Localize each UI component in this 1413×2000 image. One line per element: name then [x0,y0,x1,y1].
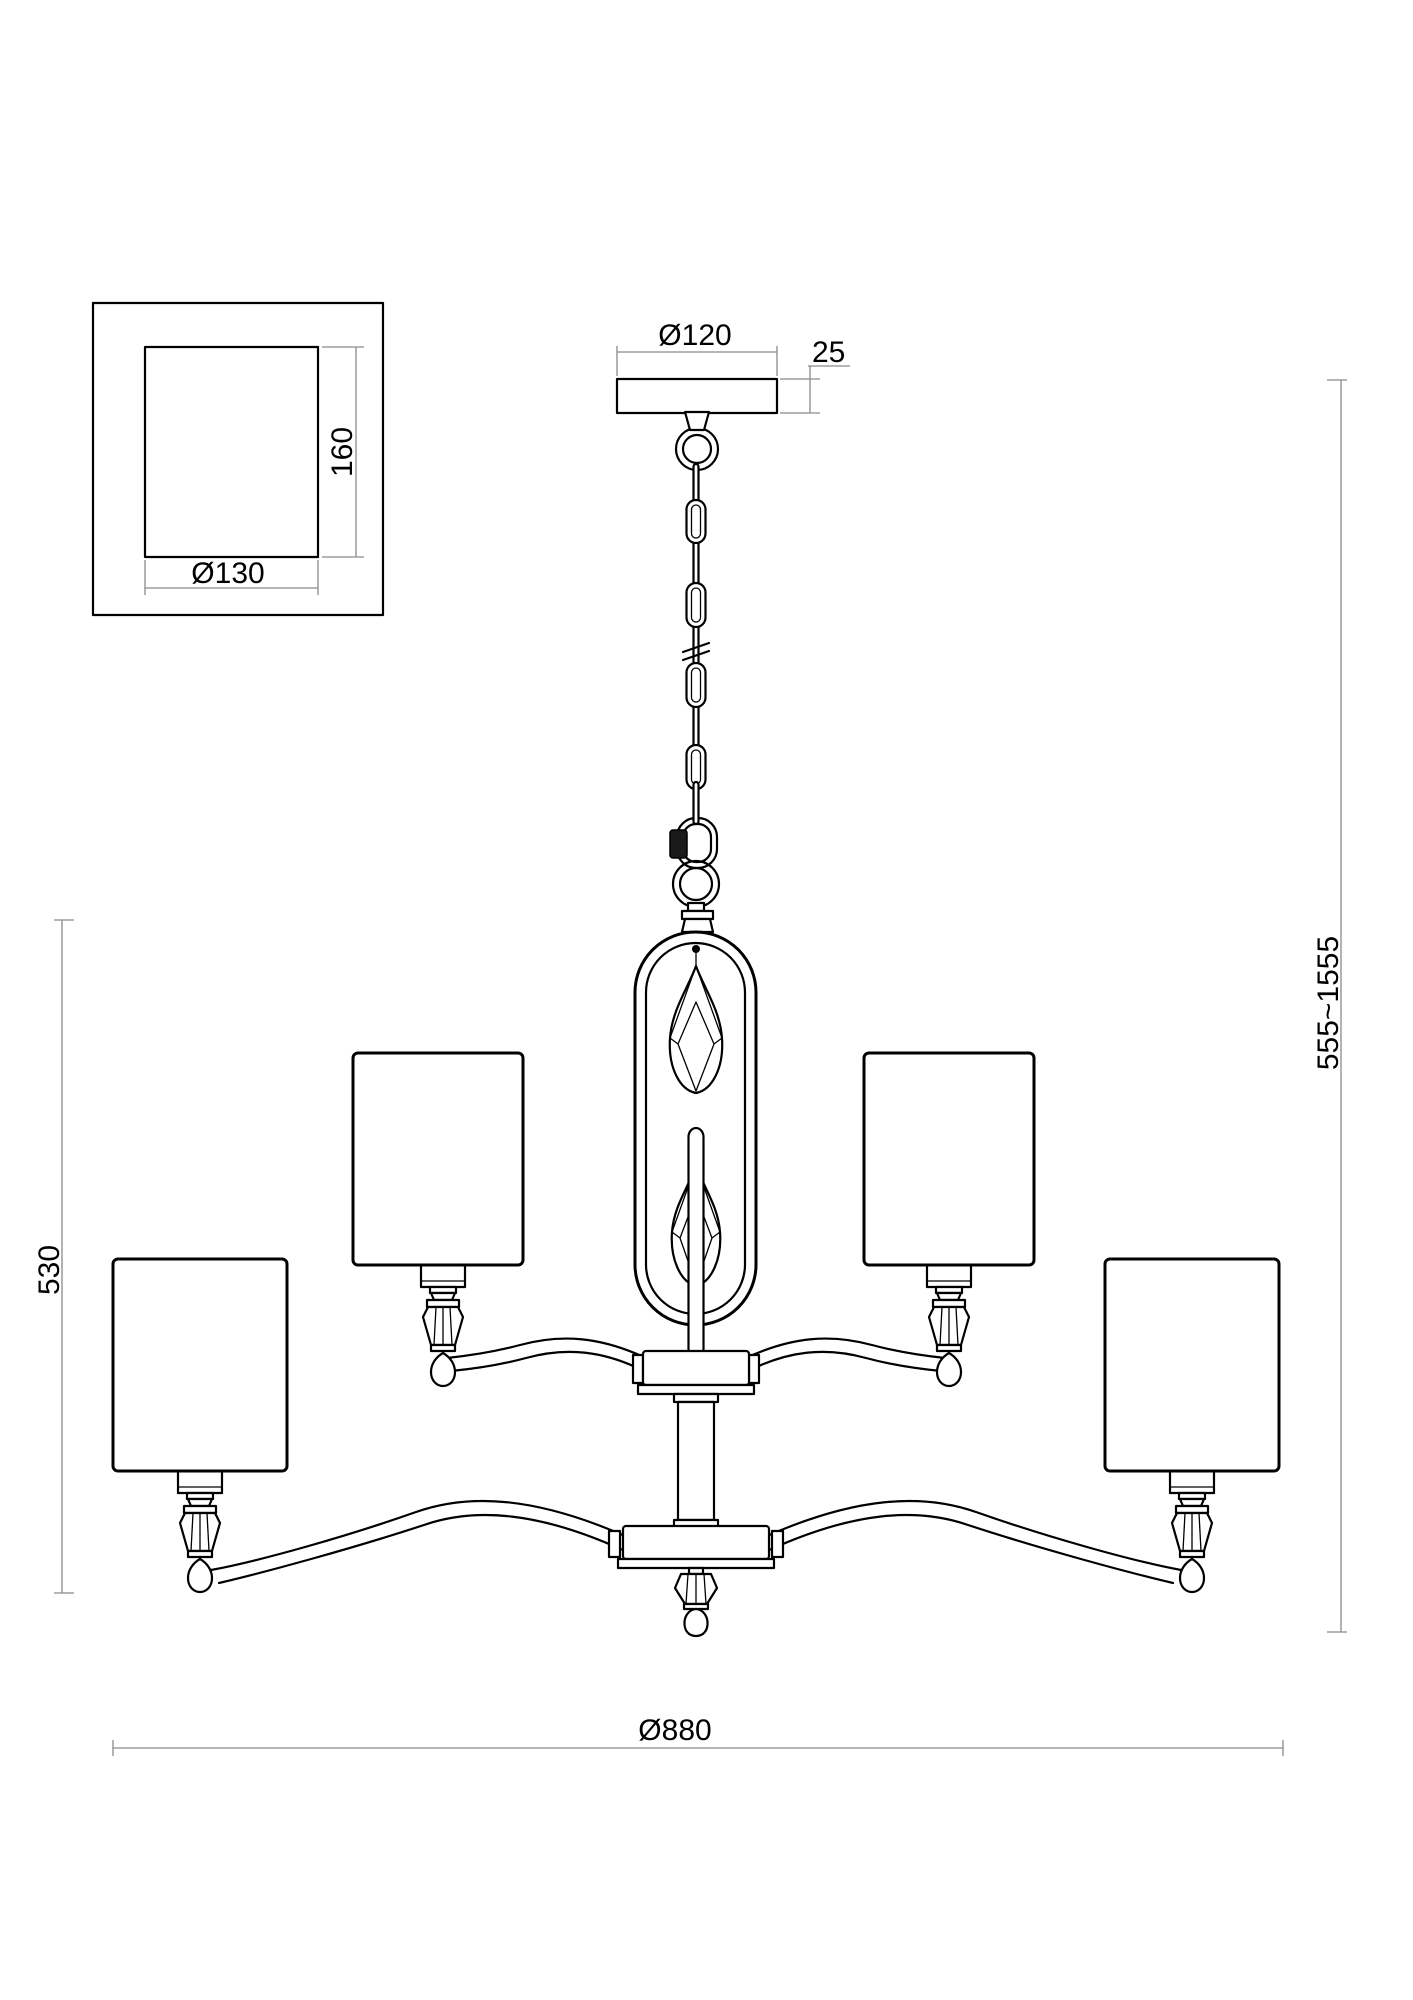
suspension-height-label: 555~1555 [1312,936,1345,1070]
shade-upper-right [864,1053,1034,1265]
mount-inner-plate [145,347,318,557]
center-column [678,1402,714,1520]
candle-upper-left [421,1265,465,1386]
center-body [635,932,756,1360]
overall-diameter-label: Ø880 [638,1714,711,1747]
canopy-diameter-label: Ø120 [658,319,731,352]
candle-lower-left [178,1471,222,1592]
body-connector [682,903,713,932]
body-height-label: 530 [33,1245,66,1295]
mount-height-label: 160 [326,427,359,477]
shade-lower-right [1105,1259,1279,1471]
candle-lower-right [1170,1471,1214,1592]
technical-drawing-canvas: 160 Ø130 Ø120 25 [0,0,1413,2000]
ceiling-canopy: Ø120 25 [617,319,850,413]
canopy-plate [617,379,777,413]
shade-lower-left [113,1259,287,1471]
center-column-assembly [609,1351,783,1636]
canopy-thickness-label: 25 [812,336,845,369]
lower-hub [623,1526,769,1559]
shade-upper-left [353,1053,523,1265]
suspension-chain [670,412,719,932]
mount-detail-view: 160 Ø130 [93,303,383,615]
chandelier-dimension-drawing: 160 Ø130 Ø120 25 [0,0,1413,2000]
bottom-finial [675,1574,717,1636]
carabiner-sleeve [670,830,687,858]
carabiner [670,782,717,868]
mount-width-label: Ø130 [191,557,264,590]
upper-hub [643,1351,749,1385]
center-rod [689,1128,704,1360]
candle-upper-right [927,1265,971,1386]
canopy-neck [685,412,709,430]
